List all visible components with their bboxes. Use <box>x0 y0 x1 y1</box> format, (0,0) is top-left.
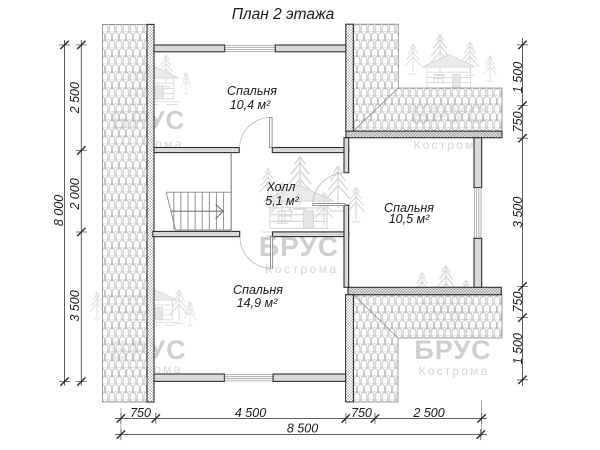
svg-text:2 500: 2 500 <box>68 82 82 114</box>
svg-text:3 500: 3 500 <box>68 290 82 321</box>
svg-text:БРУС: БРУС <box>414 335 491 365</box>
svg-text:Кострома: Кострома <box>265 262 338 276</box>
svg-text:Спальня: Спальня <box>227 84 277 98</box>
svg-text:8 500: 8 500 <box>287 422 318 436</box>
svg-text:План 2 этажа: План 2 этажа <box>232 6 335 23</box>
svg-text:750: 750 <box>511 292 525 313</box>
svg-text:750: 750 <box>351 406 372 420</box>
svg-text:750: 750 <box>511 111 525 132</box>
svg-text:750: 750 <box>130 406 151 420</box>
svg-text:3 500: 3 500 <box>511 197 525 228</box>
svg-text:8 000: 8 000 <box>52 195 66 226</box>
svg-text:5,1 м²: 5,1 м² <box>265 194 299 208</box>
svg-text:1 500: 1 500 <box>511 62 525 93</box>
svg-text:Холл: Холл <box>266 180 296 194</box>
svg-text:10,4 м²: 10,4 м² <box>230 98 271 112</box>
svg-text:10,5 м²: 10,5 м² <box>389 212 430 226</box>
svg-text:2 500: 2 500 <box>412 406 444 420</box>
svg-text:Спальня: Спальня <box>233 283 283 297</box>
svg-text:2 000: 2 000 <box>68 178 82 210</box>
svg-text:Кострома: Кострома <box>418 364 489 378</box>
svg-text:14,9 м²: 14,9 м² <box>237 296 278 310</box>
svg-text:1 500: 1 500 <box>511 333 525 364</box>
svg-text:4 500: 4 500 <box>235 406 266 420</box>
